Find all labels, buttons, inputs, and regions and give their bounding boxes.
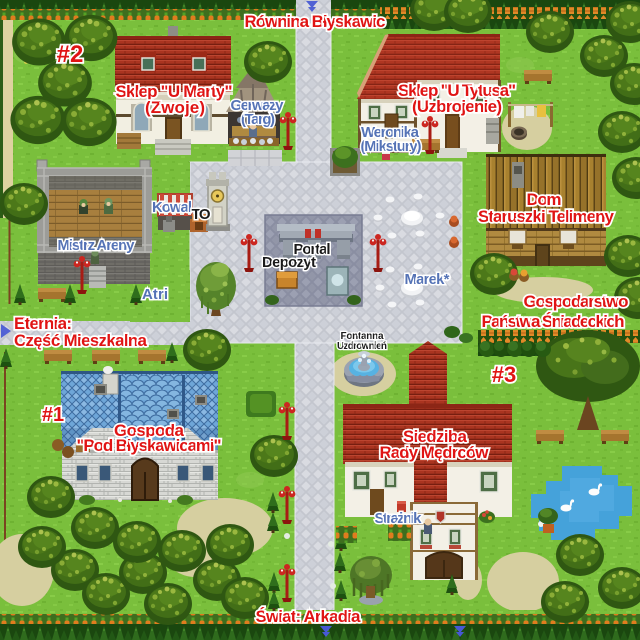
svg-text:Świat: Arkadia: Świat: Arkadia bbox=[256, 607, 362, 626]
svg-text:Strażnik: Strażnik bbox=[375, 510, 423, 527]
svg-text:(Zwoje): (Zwoje) bbox=[145, 98, 205, 117]
svg-text:(Targ): (Targ) bbox=[241, 111, 275, 128]
svg-text:Atri: Atri bbox=[142, 286, 168, 303]
svg-text:#1: #1 bbox=[42, 404, 64, 426]
svg-text:Równina Błyskawic: Równina Błyskawic bbox=[245, 12, 386, 31]
svg-text:#2: #2 bbox=[57, 41, 84, 68]
svg-text:Staruszki Telimeny: Staruszki Telimeny bbox=[478, 207, 615, 226]
svg-text:#3: #3 bbox=[492, 362, 516, 387]
svg-text:Rady Mędrców: Rady Mędrców bbox=[380, 443, 490, 462]
svg-text:Marek*: Marek* bbox=[405, 271, 450, 288]
svg-text:TO: TO bbox=[192, 206, 211, 223]
svg-text:Depozyt: Depozyt bbox=[262, 254, 316, 271]
svg-text:"Pod Błyskawicami": "Pod Błyskawicami" bbox=[77, 436, 222, 455]
svg-text:Państwa Śniadeckich: Państwa Śniadeckich bbox=[482, 312, 625, 331]
svg-text:Gospodarstwo: Gospodarstwo bbox=[524, 292, 629, 311]
svg-text:Mistrz Areny: Mistrz Areny bbox=[58, 237, 136, 254]
svg-text:(Uzbrojenie): (Uzbrojenie) bbox=[412, 97, 502, 116]
svg-text:(Mikstury): (Mikstury) bbox=[361, 138, 422, 155]
svg-text:Kowal: Kowal bbox=[152, 199, 192, 216]
svg-text:Uzdrownień: Uzdrownień bbox=[337, 341, 387, 352]
svg-text:Część Mieszkalna: Część Mieszkalna bbox=[14, 331, 148, 350]
